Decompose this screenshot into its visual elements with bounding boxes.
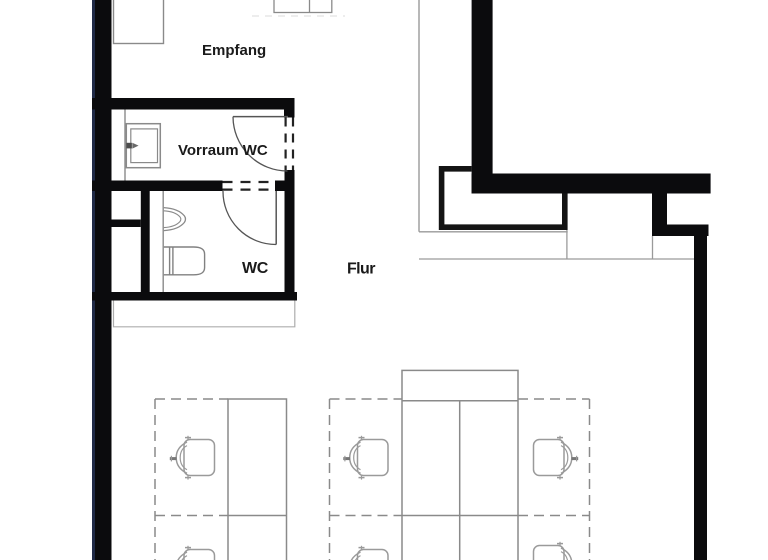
svg-text:Flur: Flur	[347, 260, 375, 277]
svg-text:WC: WC	[242, 260, 269, 277]
svg-text:Empfang: Empfang	[202, 42, 266, 59]
svg-text:Vorraum WC: Vorraum WC	[178, 142, 268, 159]
